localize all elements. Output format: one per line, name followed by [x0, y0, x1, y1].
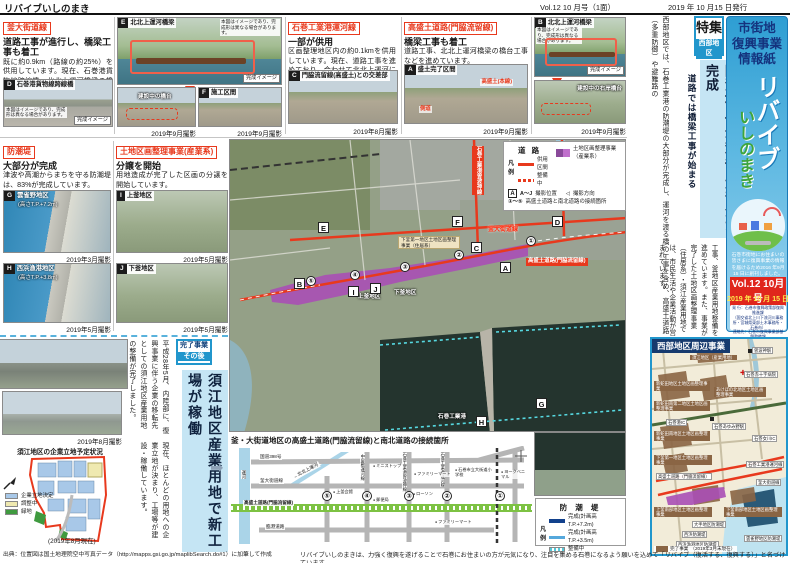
west-map-title: 西部地区周辺事業 — [652, 339, 730, 353]
photo-a: A 盛土完了区間 高盛土(本線) 側道 — [404, 64, 528, 124]
wm-label: 新蛇田地区土地区画整理事業 — [654, 381, 710, 391]
map-label-port: 石巻工業港 — [438, 412, 466, 420]
poi-familymart-2: ファミリーマート — [435, 520, 472, 525]
map-circle-1: ① — [526, 236, 536, 246]
photo-e-title: E 北北上運河橋梁 — [118, 18, 176, 28]
map-circle-3: ③ — [400, 262, 410, 272]
founding-note: 石巻市街地にお住まいの皆さまに復興事業の情報を届けるため2016 年9月15 日… — [730, 253, 786, 279]
newsletter-page: リバイブいしのまき Vol.12 10 月号（1面） 2019 年 10 月15… — [0, 0, 790, 563]
photo-b-sub: 建設中の右岸橋台 — [534, 80, 626, 124]
photo-d-note: 本図はイメージであり、完成形は異なる場合があります。 — [5, 107, 67, 118]
poi-familymart: ファミリーマート — [414, 472, 451, 477]
sidebar-body-2: 工事、釜地区産業用地整備を進めています。また、事業が完了した土地区画整理事業（住… — [672, 244, 718, 338]
road-label-398: 国道398号 — [259, 454, 282, 460]
sue-as-of: (2019年8月現在) — [48, 536, 96, 545]
sue-photo-1 — [0, 339, 128, 389]
column-divider — [531, 17, 532, 134]
wm-label: 須江地区（産業用地） — [690, 355, 737, 360]
footer-tagline: リバイブいしのまきは、力強く復興を遂げることで石巻にお住まいの方が元気になり、注… — [300, 552, 786, 563]
photo-d-title: D 石巻港貨物線跨線橋 — [4, 80, 75, 90]
photo-b-sub-label: 建設中の右岸橋台 — [577, 84, 622, 92]
article-headline: 道路工事が進行し、橋梁工事も着工 — [3, 37, 113, 58]
abutment-outline — [126, 108, 178, 120]
photo-a-caption: 盛土完了区間 — [418, 65, 456, 74]
hanrei-label: 凡 例 — [508, 145, 514, 188]
seawall-legend-title: 防 潮 堤 — [540, 502, 621, 513]
footer-source: 出典：位置図は国土地理院空中写真データ（http://mapps.gsi.go.… — [3, 552, 295, 559]
badge-line2: その後 — [178, 352, 210, 362]
map-circle-5: ⑤ — [306, 276, 316, 286]
legend-label: 完成(計画高T.P.+3.5m) — [568, 529, 621, 545]
publisher-line: （国交省北上川下流河川事務所・宮城県東部土木事務所・石巻市） — [732, 316, 784, 331]
poi-lawson: ローソン — [413, 492, 433, 497]
wm-label: 下釜南部地区土地区画整理事業 — [724, 507, 782, 517]
feature-tag: 特集 — [696, 18, 722, 39]
photo-e-note: 本図はイメージであり、完成形は異なる場合があります。 — [220, 19, 280, 36]
legend-swatch — [556, 149, 570, 157]
article-label: 釜大街道線 — [3, 22, 51, 35]
article-label: 防潮堤 — [3, 146, 35, 159]
sidebar-headline-sub: 道路では橋梁工事が始まる — [686, 74, 698, 242]
map-label-shimogama-lr: 下釜第一地区土地区画整理事業（住居系） — [398, 236, 460, 249]
legend-item: A A～J 撮影位置 ◁ 撮影方向 — [508, 189, 621, 198]
masthead: 市街地 復興事業 情報紙 リバイブ いしのまき 石巻市街地にお住まいの皆さまに復… — [726, 16, 788, 332]
road-label-rinko: 臨港道路 — [265, 524, 285, 530]
legend-swatch — [5, 493, 18, 499]
photo-g: G 雲雀野地区 (高さT.P.+7.2m) — [3, 190, 111, 253]
article-headline: 一部が供用 — [288, 37, 396, 47]
map-marker-f: F — [452, 216, 463, 227]
legend-swatch — [518, 163, 534, 166]
article-body: 津波や高潮からまちを守る防潮堤は、83%が完成しています。 — [3, 171, 111, 190]
schematic-canvas: 国道398号 釜大街道線 高盛土道路(門脇流留線) 臨港道路 運河 ←北北上運河… — [229, 446, 532, 546]
wm-label: 石巻工業港運河線 — [746, 461, 784, 468]
article-land-readjustment: 土地区画整理事業(産業系) 分譲を開始 用地造成が完了した区画の分譲を開始してい… — [116, 141, 228, 190]
photo-range: A～J — [520, 190, 532, 198]
photo-j-date: 2019年5月撮影 — [116, 324, 228, 334]
sue-body-2: 現在、ほとんどの用地への企業立地が決まり、工場等が建設・稼働しています。 — [130, 442, 170, 542]
sc-circle-1: ① — [495, 491, 505, 501]
photo-g-letter: G — [4, 191, 15, 201]
sue-photo-date: 2019年8月撮影 — [2, 436, 122, 446]
wm-label: 石巻港IC — [666, 419, 687, 426]
kicker-line: 復興事業 — [727, 37, 787, 53]
hanrei-char: 凡 — [508, 158, 514, 167]
legend-label: 企業立地決定 — [21, 492, 53, 500]
pointer-arrow-icon: ➡ — [210, 458, 223, 478]
photo-i-letter: I — [117, 191, 125, 201]
photo-f-title: F 施工区間 — [199, 88, 238, 98]
sue-body-1: 平成28年5月、内陸部に、復興事業に伴う企業の移転先としての須江地区産業用地の整… — [118, 340, 170, 436]
article-headline: 分譲を開始 — [116, 161, 228, 171]
photo-d-caption: 石巻港貨物線跨線橋 — [17, 80, 74, 89]
photo-c-caption: 門脇流留線(高盛土)との交差部 — [302, 71, 388, 80]
photo-j-letter: J — [117, 264, 127, 274]
wm-label: 新蛇田南第二地区土地区画整理事業 — [654, 401, 710, 411]
poi-post-office: 郵便局 — [373, 498, 389, 503]
road-legend-title: 道 路 — [518, 145, 552, 156]
road-label-v2: 石巻工業港曽波神線 — [402, 452, 407, 492]
wm-label: 石巻赤十字病院 — [744, 371, 778, 378]
hanrei-char: 例 — [540, 533, 546, 542]
map-marker-h: H — [476, 416, 487, 427]
photo-c: C 門脇流留線(高盛土)との交差部 — [288, 70, 398, 124]
direction-icon: ◁ — [566, 190, 570, 198]
highlight-box — [545, 38, 617, 66]
legend-item: 緑地 — [5, 508, 53, 516]
map-label-shimogama-area: 下釜地区 — [394, 288, 416, 296]
sue-legend: 企業立地決定 調整中 緑地 — [5, 492, 53, 516]
schematic: 釜・大街道地区の高盛土道路(門脇流留線)と南北道路の接続箇所 — [229, 434, 532, 548]
section-divider — [0, 335, 228, 337]
wm-label: 曽波神駅 — [752, 347, 773, 354]
wm-label: 高盛土道路（門脇流留線） — [656, 473, 712, 480]
map-label-takamori: 高盛土道路(門脇流留線) — [526, 258, 588, 266]
legend-label: 整備中 — [537, 172, 552, 188]
seawall-legend: 防 潮 堤 凡 例 完成(計画高T.P.+7.2m) 完成(計画高T.P.+3.… — [535, 498, 626, 546]
publisher-info: 発 行：石巻市復興政策部復興推進課 （国交省北上川下流河川事務所・宮城県東部土木… — [730, 305, 786, 330]
legend-item: 供用区間 — [518, 156, 552, 172]
legend-label: 撮影方向 — [573, 190, 595, 198]
photo-h-date: 2019年5月撮影 — [3, 324, 111, 334]
legend-label: 土地区画整理事業（産業系） — [573, 145, 621, 161]
article-seawall: 防潮堤 大部分が完成 津波や高潮からまちを守る防潮堤は、83%が完成しています。 — [3, 141, 111, 190]
column-divider — [114, 17, 115, 134]
photo-e-sub-label: 建設中の橋台 — [138, 92, 172, 100]
map-label-kama: 釜大街道線 — [488, 224, 518, 233]
sc-circle-2: ② — [442, 491, 452, 501]
article-label: 土地区画整理事業(産業系) — [116, 146, 217, 159]
photo-e-letter: E — [118, 18, 128, 28]
masthead-kicker: 市街地 復興事業 情報紙 — [727, 17, 787, 68]
hanrei-label: 凡 例 — [540, 513, 546, 554]
legend-label: 調整中 — [21, 500, 37, 508]
map-marker-d: D — [552, 216, 563, 227]
photo-b: B 北北上運河橋梁 本図はイメージであり、完成形は異なる場合があります。 完成イ… — [534, 17, 626, 77]
sc-circle-4: ④ — [362, 491, 372, 501]
wm-label: 石巻女川IC — [752, 435, 777, 442]
legend-swatch — [5, 509, 18, 515]
rainbow-icon — [763, 207, 781, 216]
road-label-v3: 石巻工業港運河線 — [440, 452, 445, 487]
photo-d-letter: D — [4, 80, 15, 90]
kicker-line: 情報紙 — [727, 52, 787, 68]
map-marker-i: I — [348, 286, 359, 297]
article-takamorido: 高盛土道路(門脇流留線) 橋梁工事も着工 道路工事、北北上運河橋梁の橋台工事など… — [404, 17, 528, 66]
photo-i-caption: 上釜地区 — [127, 191, 152, 200]
photo-f: F 施工区間 — [198, 87, 282, 127]
legend-item: ①～⑤ 高盛土道路と南北道路の接続箇所 — [508, 198, 621, 206]
legend-item: 調整中 — [5, 500, 53, 508]
column-divider — [285, 17, 286, 134]
road-label-kama: 釜大街道線 — [259, 478, 284, 484]
map-marker-a: A — [500, 262, 511, 273]
photo-a-title: A 盛土完了区間 — [405, 65, 457, 75]
map-strip — [534, 432, 626, 496]
road-label-takamori: 高盛土道路(門脇流留線) — [243, 500, 294, 506]
legend-item: 土地区画整理事業（産業系） — [556, 145, 621, 161]
photo-c-letter: C — [289, 71, 300, 81]
photo-d: D 石巻港貨物線跨線橋 本図はイメージであり、完成形は異なる場合があります。 完… — [3, 79, 113, 127]
wm-label: 下釜第一地区土地区画整理事業 — [654, 455, 712, 465]
town-illustration — [731, 199, 785, 251]
house-icon — [751, 221, 759, 230]
article-body: 用地造成が完了した区画の分譲を開始しています。 — [116, 171, 228, 190]
hanrei-char: 凡 — [540, 524, 546, 533]
photo-a-date: 2019年9月撮影 — [404, 126, 528, 136]
header-rule — [0, 13, 790, 15]
road-label-v1: 中屋敷運河線 — [360, 454, 365, 480]
photo-c-title: C 門脇流留線(高盛土)との交差部 — [289, 71, 390, 81]
marker-sample: A — [508, 189, 517, 198]
road-label-unga: 運河 — [241, 470, 246, 479]
wm-label: 石巻あゆみ野駅 — [712, 423, 746, 430]
photo-e-sub: 建設中の橋台 — [117, 87, 196, 127]
road-shape — [745, 241, 771, 245]
badge-line1: 完了事業 — [178, 341, 210, 352]
poi-york-benimaru: ヨークベニマル — [501, 470, 527, 479]
legend-item: 整備中 — [518, 172, 552, 188]
article-headline: 大部分が完成 — [3, 161, 111, 171]
west-map: ✚ 西部地区周辺事業 須江地区（産業用地） 曽波神駅 石巻赤十字病院 新蛇田地区… — [650, 337, 788, 556]
house-icon — [764, 223, 772, 230]
sc-circle-5: ⑤ — [322, 491, 332, 501]
house-icon — [739, 223, 747, 230]
legend-label: 高盛土道路と南北道路の接続箇所 — [526, 198, 612, 206]
photo-a-letter: A — [405, 65, 416, 75]
wm-label: 大手地区防潮堤 — [692, 521, 726, 528]
highlight-box — [130, 40, 255, 74]
photo-h-letter: H — [4, 264, 15, 274]
photo-j-caption: 下釜地区 — [129, 264, 154, 273]
legend-swatch — [549, 519, 565, 523]
photo-b-date: 2019年9月撮影 — [534, 126, 626, 136]
sc-circle-3: ③ — [404, 491, 414, 501]
abutment-outline — [541, 103, 591, 115]
legend-item: 企業立地決定 — [5, 492, 53, 500]
photo-h: H 西浜漁港地区 (高さT.P.+3.8m) — [3, 263, 111, 323]
map-marker-e: E — [318, 222, 329, 233]
hanrei-char: 例 — [508, 167, 514, 176]
masthead-subtitle: いしのまき — [732, 108, 756, 190]
schematic-svg — [229, 446, 532, 546]
photo-d-tag: 完成イメージ — [74, 116, 111, 125]
photo-e-tag: 完成イメージ — [243, 74, 280, 83]
article-label: 石巻工業港運河線 — [288, 22, 360, 35]
volume-label: Vol.12 10 月号（1面） — [540, 2, 615, 13]
legend-swatch — [5, 501, 18, 507]
legend-item: 完成(計画高T.P.+3.5m) — [549, 529, 621, 545]
article-headline: 橋梁工事も着工 — [404, 37, 528, 47]
band-divider — [0, 137, 627, 138]
photo-j-title: J 下釜地区 — [117, 264, 156, 274]
photo-i: I 上釜地区 — [116, 190, 228, 253]
photo-g-height: (高さT.P.+7.2m) — [18, 200, 58, 208]
map-marker-b: B — [294, 278, 305, 289]
photo-e-caption: 北北上運河橋梁 — [130, 18, 174, 27]
column-divider — [401, 17, 402, 134]
wm-label: 西浜防潮堤 — [682, 531, 707, 538]
map-circle-2: ② — [454, 250, 464, 260]
photo-e: E 北北上運河橋梁 本図はイメージであり、完成形は異なる場合があります。 完成イ… — [117, 17, 282, 85]
wm-label: 上釜南部地区土地区画整理事業 — [654, 507, 712, 517]
issue-date: 2019 年 10 月15 日発行 — [668, 2, 747, 13]
feature-area: 西部地区 — [696, 39, 722, 59]
number-range: ①～⑤ — [508, 198, 523, 206]
wm-label: 新蛇田南地区土地区画整理事業 — [654, 431, 710, 441]
legend-item: 完成(計画高T.P.+7.2m) — [549, 513, 621, 529]
poi-elementary-school: 石巻市立大街道小学校 — [455, 468, 495, 477]
map-marker-c: C — [471, 242, 482, 253]
legend-label: 緑地 — [21, 508, 32, 516]
photo-a-label-side: 側道 — [419, 106, 432, 113]
map-label-sobanokami-line: 石巻工業港曽波神線 — [472, 146, 484, 195]
feature-box: 特集 西部地区 — [694, 16, 724, 56]
photo-i-title: I 上釜地区 — [117, 191, 154, 201]
photo-j: J 下釜地区 — [116, 263, 228, 323]
legend-label: 供用区間 — [537, 156, 552, 172]
legend-label: 撮影位置 — [535, 190, 557, 198]
column-divider — [113, 141, 114, 331]
poi-ministop: ミニストップ — [373, 464, 401, 469]
legend-swatch — [549, 536, 565, 540]
wm-label: 雲雀野地区防潮堤 — [744, 535, 782, 542]
road-legend: 凡 例 道 路 供用区間 整備中 土地区画整理事業（産業系） A A～J — [503, 141, 626, 211]
article-label: 高盛土道路(門脇流留線) — [404, 22, 497, 35]
photo-f-letter: F — [199, 88, 209, 98]
legend-swatch — [518, 179, 534, 182]
kicker-line: 市街地 — [727, 21, 787, 37]
map-marker-j: J — [370, 283, 381, 294]
legend-label: 完成(計画高T.P.+7.2m) — [568, 513, 621, 529]
map-circle-4: ④ — [350, 270, 360, 280]
photo-h-height: (高さT.P.+3.8m) — [18, 273, 58, 281]
followup-badge: 完了事業 その後 — [176, 339, 212, 365]
photo-c-date: 2019年8月撮影 — [288, 126, 398, 136]
sue-photo-2 — [2, 391, 122, 435]
map-marker-g: G — [536, 398, 547, 409]
photo-a-label-main: 高盛土(本線) — [480, 79, 513, 86]
photo-b-tag: 完成イメージ — [587, 66, 624, 75]
wm-label: あけぼの北地区土地区画整理事業 — [714, 387, 766, 397]
poi-kamigama-hall: 上釜会館 — [333, 490, 353, 495]
wm-label: 釜大街道線 — [756, 479, 781, 486]
photo-f-caption: 施工区間 — [211, 88, 236, 97]
